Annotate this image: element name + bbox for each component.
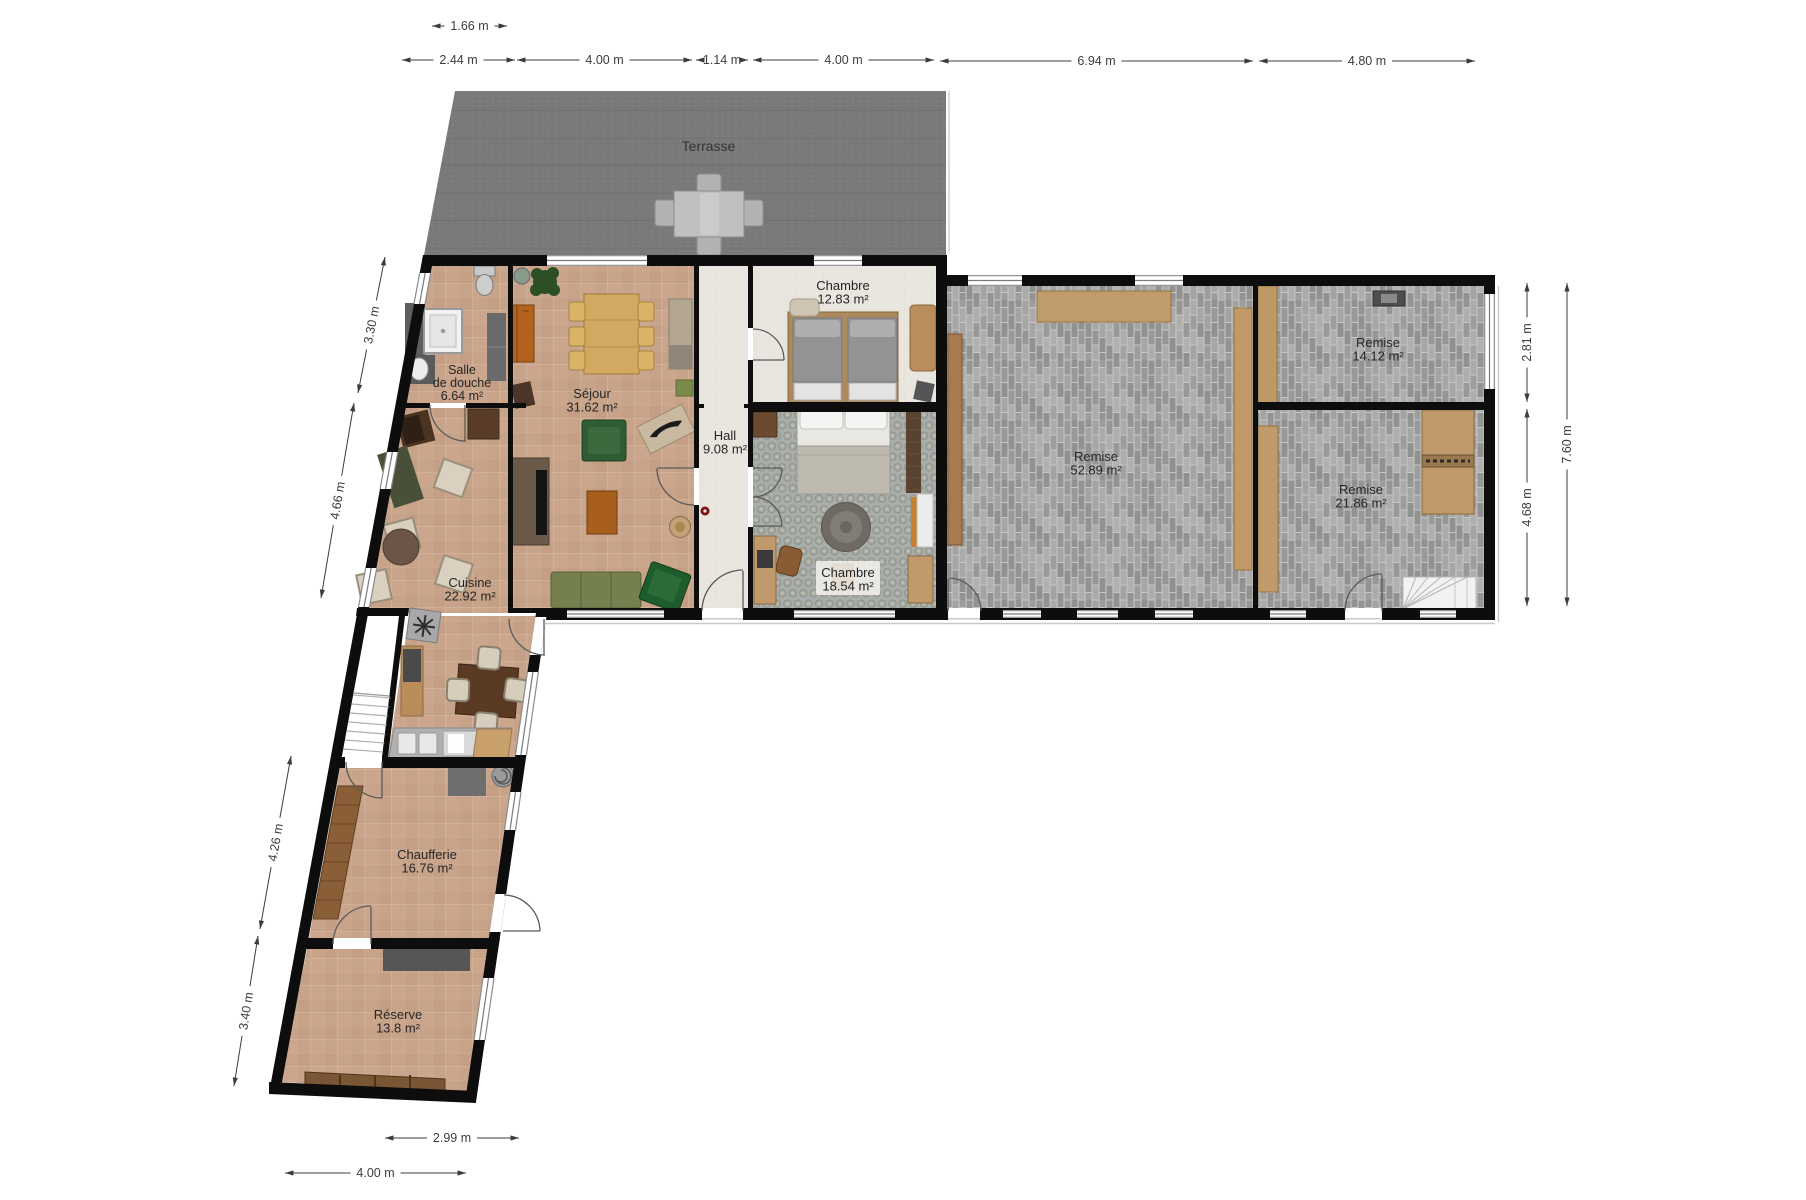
svg-text:4.80 m: 4.80 m bbox=[1348, 54, 1386, 68]
svg-text:1.66 m: 1.66 m bbox=[450, 19, 488, 33]
svg-text:4.00 m: 4.00 m bbox=[585, 53, 623, 67]
svg-text:2.99 m: 2.99 m bbox=[433, 1131, 471, 1145]
svg-text:6.94 m: 6.94 m bbox=[1077, 54, 1115, 68]
svg-text:2.44 m: 2.44 m bbox=[439, 53, 477, 67]
svg-text:12.83 m²: 12.83 m² bbox=[817, 292, 869, 307]
svg-text:52.89 m²: 52.89 m² bbox=[1070, 463, 1122, 478]
svg-text:31.62 m²: 31.62 m² bbox=[566, 400, 618, 415]
svg-text:4.00 m: 4.00 m bbox=[824, 53, 862, 67]
svg-text:de douche: de douche bbox=[433, 376, 491, 390]
svg-text:14.12 m²: 14.12 m² bbox=[1352, 349, 1404, 364]
svg-text:13.8 m²: 13.8 m² bbox=[376, 1021, 421, 1036]
svg-text:4.00 m: 4.00 m bbox=[356, 1166, 394, 1180]
svg-text:Salle: Salle bbox=[448, 363, 476, 377]
svg-text:21.86 m²: 21.86 m² bbox=[1335, 496, 1387, 511]
svg-text:9.08 m²: 9.08 m² bbox=[703, 442, 748, 457]
svg-text:2.81 m: 2.81 m bbox=[1520, 323, 1534, 361]
svg-text:22.92 m²: 22.92 m² bbox=[444, 589, 496, 604]
svg-text:6.64 m²: 6.64 m² bbox=[441, 389, 483, 403]
svg-text:Terrasse: Terrasse bbox=[682, 138, 736, 154]
svg-text:18.54 m²: 18.54 m² bbox=[822, 579, 874, 594]
svg-text:4.68 m: 4.68 m bbox=[1520, 488, 1534, 526]
svg-text:16.76 m²: 16.76 m² bbox=[401, 861, 453, 876]
svg-text:7.60 m: 7.60 m bbox=[1560, 425, 1574, 463]
svg-text:1.14 m: 1.14 m bbox=[703, 53, 741, 67]
